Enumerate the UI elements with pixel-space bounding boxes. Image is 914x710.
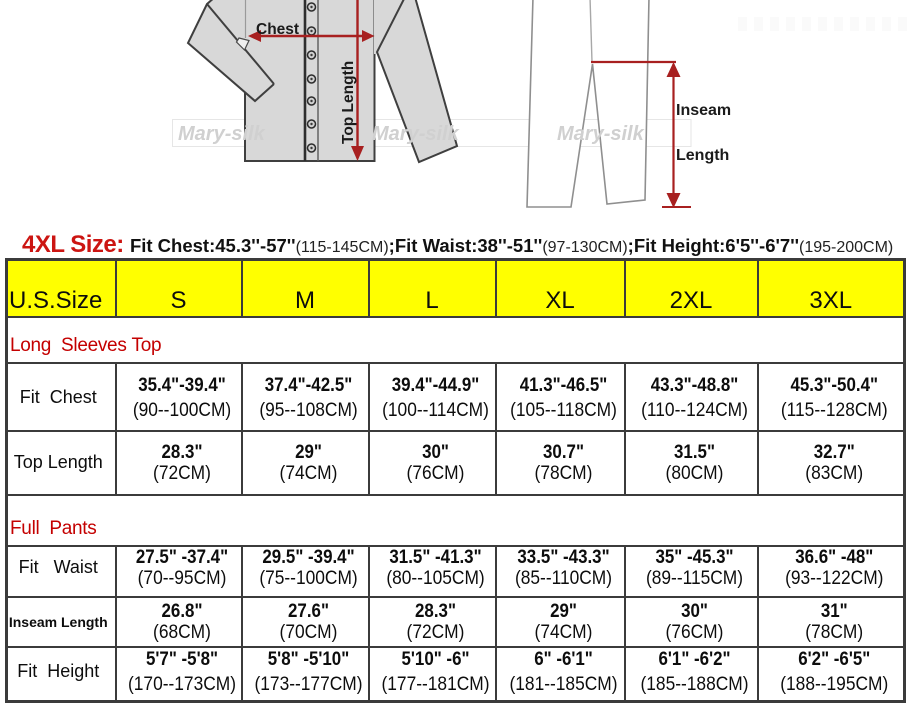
svg-text:Inseam: Inseam xyxy=(676,102,731,119)
svg-text:Chest: Chest xyxy=(256,21,299,38)
svg-text:Mary-silk: Mary-silk xyxy=(372,123,460,145)
svg-text:Mary-silk: Mary-silk xyxy=(557,123,645,145)
svg-text:Length: Length xyxy=(676,147,729,164)
svg-text:Top Length: Top Length xyxy=(340,61,357,144)
svg-text:Mary-silk: Mary-silk xyxy=(178,123,266,145)
